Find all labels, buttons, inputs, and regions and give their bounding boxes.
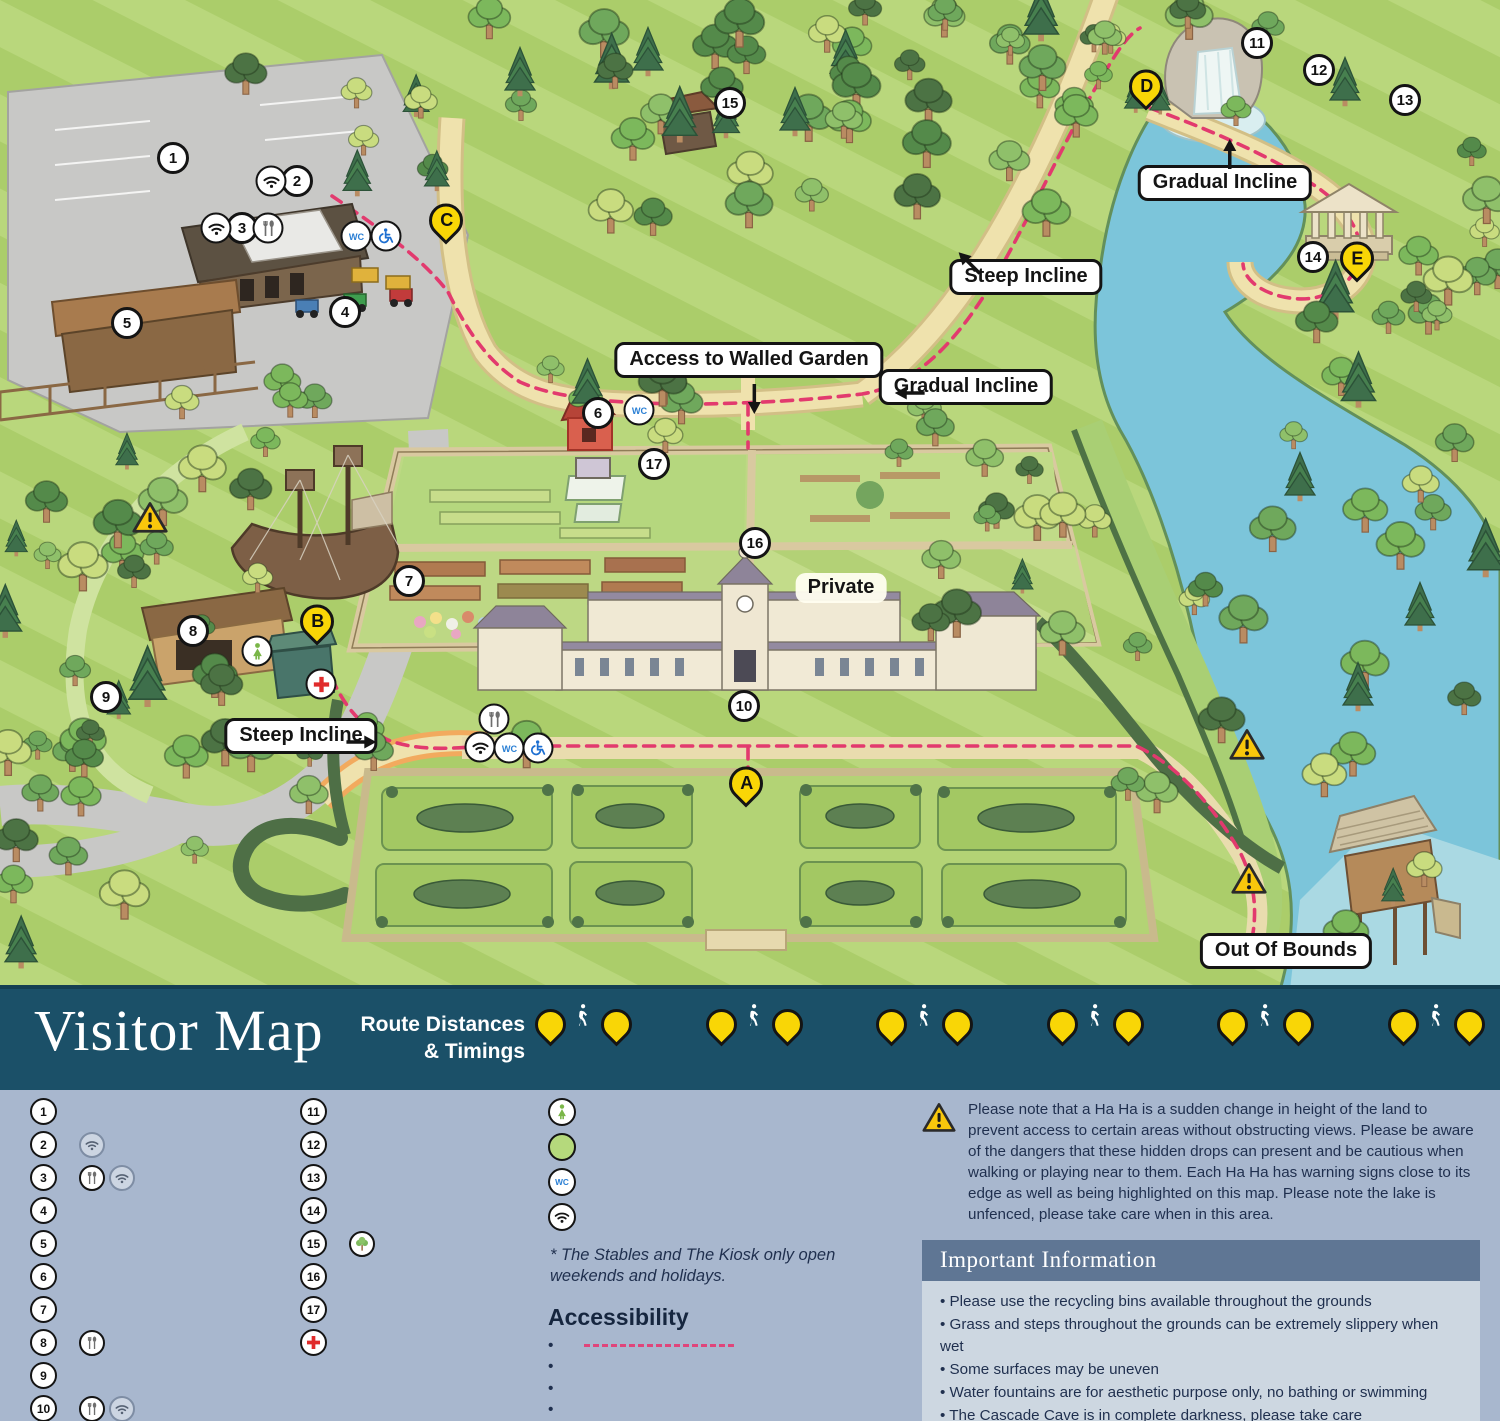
accessibility-title: Accessibility: [548, 1304, 923, 1331]
route-pin-start: [1382, 1003, 1426, 1047]
label-arrow-icon: [340, 733, 376, 751]
map-marker-7[interactable]: 7: [393, 565, 425, 597]
route-pin-end: [1277, 1003, 1321, 1047]
route-distances-heading: Route Distances & Timings: [300, 1011, 525, 1066]
route-info: [1083, 1003, 1108, 1030]
legend-number-badge: 5: [30, 1230, 57, 1257]
symbol-legend: WC: [548, 1098, 923, 1231]
wifi-icon: [84, 1137, 100, 1153]
legend-number-badge: 6: [30, 1263, 57, 1290]
warning-triangle-icon: [1229, 728, 1265, 761]
lostchild-icon: [548, 1098, 576, 1126]
wifi-icon: [109, 1165, 135, 1191]
legend-number-badge: 3: [30, 1164, 57, 1191]
warning-triangle-icon: [1231, 862, 1267, 895]
map-route-pin-C[interactable]: C: [429, 204, 463, 238]
route-pin-start: [870, 1003, 914, 1047]
wheelchair-icon: [376, 226, 396, 246]
route-distance-list: [535, 1003, 1485, 1040]
route-pin-end: [765, 1003, 809, 1047]
legend-number-badge: 17: [300, 1296, 327, 1323]
map-food-icon[interactable]: [253, 213, 284, 244]
toilets-icon: WC: [553, 1173, 571, 1191]
lost-child-icon: [553, 1103, 571, 1121]
food-icon: [84, 1170, 100, 1186]
route-pin-start: [699, 1003, 743, 1047]
legend-item-12: 12: [300, 1131, 375, 1158]
legend-number-badge: 7: [30, 1296, 57, 1323]
important-information-item: Please use the recycling bins available …: [940, 1291, 1462, 1314]
map-wc-icon[interactable]: WC: [624, 395, 655, 426]
map-marker-4[interactable]: 4: [329, 296, 361, 328]
important-information-item: Grass and steps throughout the grounds c…: [940, 1314, 1462, 1360]
tree-icon: [354, 1236, 370, 1252]
map-firstaid-icon[interactable]: [306, 669, 337, 700]
legend-number-badge: 9: [30, 1362, 57, 1389]
toilets-icon: WC: [629, 400, 649, 420]
first-aid-icon: [300, 1329, 327, 1356]
toilets-icon: WC: [499, 738, 519, 758]
walking-person-icon: [1424, 1003, 1446, 1027]
label-arrow-icon: [895, 384, 931, 402]
warning-triangle-icon: [922, 1100, 956, 1226]
food-icon: [79, 1396, 105, 1421]
symbol-legend-item-wc: WC: [548, 1168, 923, 1196]
legend-item-11: 11: [300, 1098, 375, 1125]
wifi-icon: [548, 1203, 576, 1231]
wheelchair-route-dash-sample: [584, 1344, 734, 1347]
map-route-pin-D[interactable]: D: [1129, 70, 1163, 104]
route-segment-A-B: [535, 1003, 632, 1040]
walking-person-icon: [912, 1003, 934, 1027]
map-wifi-icon[interactable]: [256, 166, 287, 197]
legend-number-badge: 16: [300, 1263, 327, 1290]
legend-column-4: Please note that a Ha Ha is a sudden cha…: [922, 1100, 1480, 1421]
route-segment-C-B: [876, 1003, 973, 1040]
map-label-steep-incline: Steep Incline: [949, 259, 1102, 295]
legend-column-3: WC * The Stables and The Kiosk only open…: [548, 1098, 923, 1420]
route-segment-E-A: [1388, 1003, 1485, 1040]
page-title: Visitor Map: [34, 997, 323, 1064]
wheelchair-icon: [528, 738, 548, 758]
private-icon: [548, 1133, 576, 1161]
svg-text:WC: WC: [555, 1178, 569, 1187]
route-pin-end: [1448, 1003, 1492, 1047]
map-route-pin-A[interactable]: A: [729, 767, 763, 801]
route-segment-C-E: [1217, 1003, 1314, 1040]
accessibility-item: [548, 1399, 923, 1420]
legend-item-8: 8: [30, 1329, 135, 1356]
legend-item-14: 14: [300, 1197, 375, 1224]
legend-column-1: 12345678910: [30, 1098, 135, 1421]
route-segment-C-D: [1047, 1003, 1144, 1040]
legend-item-1: 1: [30, 1098, 135, 1125]
food-icon: [84, 1335, 100, 1351]
food-icon: [484, 709, 504, 729]
route-pin-end: [595, 1003, 639, 1047]
route-pin-start: [1211, 1003, 1255, 1047]
walking-person-icon: [571, 1003, 593, 1027]
map-label-gradual-incline: Gradual Incline: [1138, 165, 1312, 201]
legend-item-9: 9: [30, 1362, 135, 1389]
legend-item-7: 7: [30, 1296, 135, 1323]
important-information-item: The Cascade Cave is in complete darkness…: [940, 1405, 1462, 1421]
route-pin-end: [1106, 1003, 1150, 1047]
accessibility-item: [548, 1356, 923, 1377]
label-arrow-icon: [1221, 139, 1239, 175]
haha-warning-note: Please note that a Ha Ha is a sudden cha…: [922, 1100, 1480, 1226]
legend-number-badge: 12: [300, 1131, 327, 1158]
accessibility-item: [548, 1378, 923, 1399]
route-info: [742, 1003, 767, 1030]
map-wifi-icon[interactable]: [201, 213, 232, 244]
wifi-icon: [114, 1170, 130, 1186]
legend-item-first-aid: [300, 1329, 375, 1356]
map-food-icon[interactable]: [479, 704, 510, 735]
important-information-title: Important Information: [922, 1240, 1480, 1281]
label-arrow-icon: [745, 378, 763, 414]
tree-icon: [349, 1231, 375, 1257]
legend-item-16: 16: [300, 1263, 375, 1290]
food-icon: [84, 1401, 100, 1417]
map-warning-triangle-icon: [1229, 728, 1265, 766]
legend-number-badge: 13: [300, 1164, 327, 1191]
wifi-icon: [114, 1401, 130, 1417]
wifi-icon: [79, 1132, 105, 1158]
accessibility-list: [548, 1335, 923, 1421]
map-label-out-of-bounds: Out Of Bounds: [1200, 933, 1372, 969]
warning-triangle-icon: [922, 1102, 956, 1133]
map-marker-9[interactable]: 9: [90, 681, 122, 713]
route-info: [912, 1003, 937, 1030]
svg-text:WC: WC: [348, 232, 364, 242]
map-marker-1[interactable]: 1: [157, 142, 189, 174]
map-access-icon[interactable]: [523, 733, 554, 764]
wc-icon: WC: [548, 1168, 576, 1196]
important-information-list: Please use the recycling bins available …: [940, 1291, 1462, 1421]
map-marker-5[interactable]: 5: [111, 307, 143, 339]
svg-text:WC: WC: [631, 406, 647, 416]
food-icon: [79, 1330, 105, 1356]
map-canvas: 1234567891011121314151617ABCDEWCWCWCGrad…: [0, 0, 1500, 990]
route-pin-start: [529, 1003, 573, 1047]
map-warning-triangle-icon: [132, 501, 168, 539]
accessibility-section: Accessibility: [548, 1304, 923, 1421]
map-marker-13[interactable]: 13: [1389, 84, 1421, 116]
map-marker-10[interactable]: 10: [728, 690, 760, 722]
map-marker-14[interactable]: 14: [1297, 241, 1329, 273]
legend-number-badge: 2: [30, 1131, 57, 1158]
walking-person-icon: [742, 1003, 764, 1027]
important-information-panel: Important Information Please use the rec…: [922, 1240, 1480, 1421]
map-marker-15[interactable]: 15: [714, 87, 746, 119]
legend-column-2: 11121314151617: [300, 1098, 375, 1356]
route-info: [571, 1003, 596, 1030]
map-lostchild-icon[interactable]: [242, 636, 273, 667]
legend-number-badge: 4: [30, 1197, 57, 1224]
wifi-icon: [470, 737, 490, 757]
map-marker-6[interactable]: 6: [582, 397, 614, 429]
first-aid-icon: [311, 674, 331, 694]
food-icon: [79, 1165, 105, 1191]
lost-child-icon: [247, 641, 267, 661]
map-label-access-to-walled-garden: Access to Walled Garden: [614, 342, 883, 378]
legend-number-badge: 8: [30, 1329, 57, 1356]
legend-item-15: 15: [300, 1230, 375, 1257]
legend-item-3: 3: [30, 1164, 135, 1191]
legend-number-badge: 11: [300, 1098, 327, 1125]
map-marker-12[interactable]: 12: [1303, 54, 1335, 86]
wifi-icon: [109, 1396, 135, 1421]
symbol-legend-item-private: [548, 1133, 923, 1161]
first-aid-icon: [305, 1334, 322, 1351]
legend-item-17: 17: [300, 1296, 375, 1323]
visitor-map-page: 1234567891011121314151617ABCDEWCWCWCGrad…: [0, 0, 1500, 1421]
map-label-private: Private: [796, 573, 887, 603]
map-wc-icon[interactable]: WC: [341, 221, 372, 252]
legend-item-6: 6: [30, 1263, 135, 1290]
wifi-icon: [261, 171, 281, 191]
map-access-icon[interactable]: [371, 221, 402, 252]
symbol-legend-item-lostchild: [548, 1098, 923, 1126]
toilets-icon: WC: [346, 226, 366, 246]
map-marker-17[interactable]: 17: [638, 448, 670, 480]
legend-number-badge: 10: [30, 1395, 57, 1421]
food-icon: [258, 218, 278, 238]
legend-item-13: 13: [300, 1164, 375, 1191]
warning-triangle-icon: [132, 501, 168, 534]
map-wifi-icon[interactable]: [465, 732, 496, 763]
wifi-icon: [553, 1208, 571, 1226]
walking-person-icon: [1253, 1003, 1275, 1027]
symbol-legend-item-wifi: [548, 1203, 923, 1231]
svg-text:WC: WC: [501, 744, 517, 754]
map-wc-icon[interactable]: WC: [494, 733, 525, 764]
route-info: [1253, 1003, 1278, 1030]
map-marker-16[interactable]: 16: [739, 527, 771, 559]
important-information-item: Some surfaces may be uneven: [940, 1359, 1462, 1382]
map-marker-8[interactable]: 8: [177, 615, 209, 647]
map-route-pin-B[interactable]: B: [300, 605, 334, 639]
legend-item-10: 10: [30, 1395, 135, 1421]
route-pin-end: [936, 1003, 980, 1047]
route-info: [1424, 1003, 1449, 1030]
legend-item-5: 5: [30, 1230, 135, 1257]
map-route-pin-E[interactable]: E: [1340, 242, 1374, 276]
accessibility-item: [548, 1335, 923, 1356]
stables-kiosk-footnote: * The Stables and The Kiosk only open we…: [550, 1245, 850, 1288]
wifi-icon: [206, 218, 226, 238]
legend-item-2: 2: [30, 1131, 135, 1158]
legend-number-badge: 15: [300, 1230, 327, 1257]
walking-person-icon: [1083, 1003, 1105, 1027]
legend-number-badge: 1: [30, 1098, 57, 1125]
legend-item-4: 4: [30, 1197, 135, 1224]
title-bar: Visitor Map Route Distances & Timings: [0, 985, 1500, 1090]
map-label-gradual-incline: Gradual Incline: [879, 369, 1053, 405]
map-marker-11[interactable]: 11: [1241, 27, 1273, 59]
route-pin-start: [1040, 1003, 1084, 1047]
map-label-steep-incline: Steep Incline: [224, 718, 377, 754]
route-segment-A-C: [706, 1003, 803, 1040]
important-information-item: Water fountains are for aesthetic purpos…: [940, 1382, 1462, 1405]
legend-panel: 12345678910 11121314151617 WC * The Stab…: [0, 1090, 1500, 1421]
map-warning-triangle-icon: [1231, 862, 1267, 900]
haha-warning-text: Please note that a Ha Ha is a sudden cha…: [968, 1100, 1480, 1226]
legend-number-badge: 14: [300, 1197, 327, 1224]
